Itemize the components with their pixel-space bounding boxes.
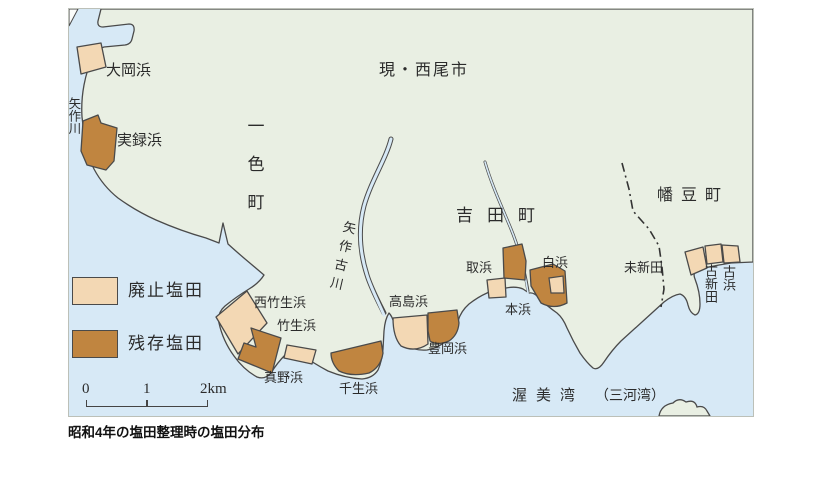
legend-abolished-swatch xyxy=(72,277,118,305)
salt-field-torihama-shape xyxy=(503,244,526,280)
label-manohama: 真野浜 xyxy=(264,371,303,386)
label-current-city: 現・西尾市 xyxy=(379,62,469,80)
label-honhama: 本浜 xyxy=(505,303,531,318)
legend-remaining-label: 残存塩田 xyxy=(128,334,204,354)
map-caption: 昭和4年の塩田整理時の塩田分布 xyxy=(68,421,265,441)
label-miishinden: 未新田 xyxy=(624,261,663,276)
salt-field-takashimahama-shape xyxy=(393,315,428,349)
label-takeohama: 竹生浜 xyxy=(277,319,316,334)
salt-field-torihama-abolished-shape xyxy=(487,278,506,298)
salt-field-kohama-shape xyxy=(722,245,740,263)
island xyxy=(659,400,710,416)
salt-field-shirahama-abolished-shape xyxy=(549,276,564,293)
scale-bar-mid-tick xyxy=(146,400,148,407)
label-yahagi-river: 矢作川 xyxy=(66,97,80,135)
salt-field-koshinden-shape xyxy=(705,244,723,264)
page: 大岡浜 矢作川 実録浜 一色町 現・西尾市 矢作古川 吉田町 幡豆町 西竹生浜 … xyxy=(0,0,820,479)
label-kohama: 古浜 xyxy=(720,265,735,291)
legend-remaining-swatch xyxy=(72,330,118,358)
scale-tick-2: 2km xyxy=(200,381,227,398)
label-takashimahama: 高島浜 xyxy=(389,295,428,310)
label-torihama: 取浜 xyxy=(466,261,492,276)
label-bay: 渥美湾 xyxy=(512,388,584,405)
land-sliver xyxy=(69,9,78,26)
scale-tick-1: 1 xyxy=(143,381,151,398)
scale-tick-0: 0 xyxy=(82,381,90,398)
label-sennyuhama: 千生浜 xyxy=(339,382,378,397)
salt-field-toyookahama-shape xyxy=(428,310,459,344)
label-toyookahama: 豊岡浜 xyxy=(428,342,467,357)
label-jitsurokuhama: 実録浜 xyxy=(117,133,162,150)
label-isshiki-town: 一色町 xyxy=(244,117,264,231)
label-yoshida-town: 吉田町 xyxy=(456,206,549,226)
label-koshinden: 古新田 xyxy=(702,264,717,303)
label-nishitakeohama: 西竹生浜 xyxy=(254,296,306,311)
label-hazu-town: 幡豆町 xyxy=(657,187,729,205)
label-shirahama: 白浜 xyxy=(542,256,568,271)
legend-abolished-label: 廃止塩田 xyxy=(128,281,204,301)
label-bay-alt: （三河湾） xyxy=(595,389,665,405)
label-ogahama: 大岡浜 xyxy=(106,63,151,80)
